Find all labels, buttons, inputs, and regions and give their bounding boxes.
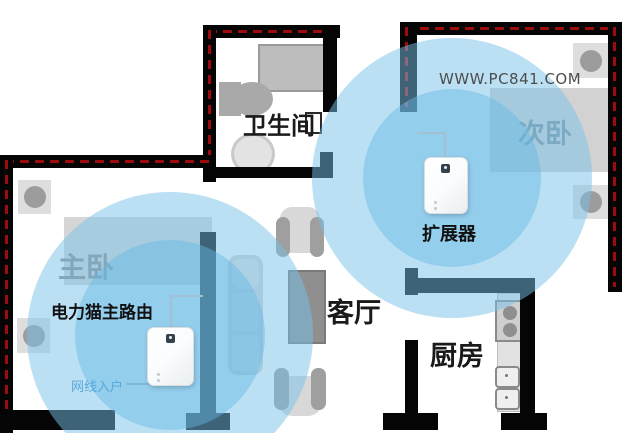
wall-kitchen-left-foot <box>383 413 438 430</box>
wall-bathroom-top <box>203 25 340 38</box>
wall-left-exterior <box>0 155 13 433</box>
router-device <box>147 327 194 386</box>
kitchen-sink <box>495 366 520 410</box>
router-label: 电力猫主路由 <box>51 298 153 323</box>
device-logo-icon <box>166 334 175 343</box>
extender-cable-horizontal <box>418 132 446 134</box>
watermark: WWW.PC841.COM <box>439 70 581 88</box>
wall-right-exterior <box>608 22 622 292</box>
bathtub <box>258 44 330 92</box>
extender-cable-vertical <box>444 132 446 158</box>
router-cable-horizontal <box>170 295 203 297</box>
room-label-living-room: 客厅 <box>327 291 381 330</box>
wall-master-top <box>0 155 216 168</box>
wall-kitchen-right <box>520 293 535 413</box>
extender-device <box>424 157 468 214</box>
wall-secondary-top <box>400 22 622 35</box>
lamp-icon <box>580 50 602 72</box>
room-label-kitchen: 厨房 <box>430 334 484 373</box>
burner-icon <box>503 323 517 337</box>
lamp-icon <box>24 186 46 208</box>
device-vents-icon <box>157 373 160 376</box>
wall-kitchen-left <box>405 340 418 413</box>
wall-kitchen-right-foot <box>501 413 547 430</box>
nightstand <box>18 180 51 214</box>
network-entry-label: 网线入户 <box>71 376 123 395</box>
device-logo-icon <box>441 164 450 173</box>
room-label-bathroom: 卫生间 <box>243 106 315 141</box>
burner-icon <box>503 306 517 320</box>
device-vents-icon <box>434 201 437 204</box>
extender-label: 扩展器 <box>422 220 476 246</box>
router-cable-vertical <box>170 295 172 327</box>
floorplan-diagram: 卫生间 次卧 主卧 客厅 厨房 WWW.PC841.COM 扩展器 电力猫主路由… <box>0 0 628 433</box>
